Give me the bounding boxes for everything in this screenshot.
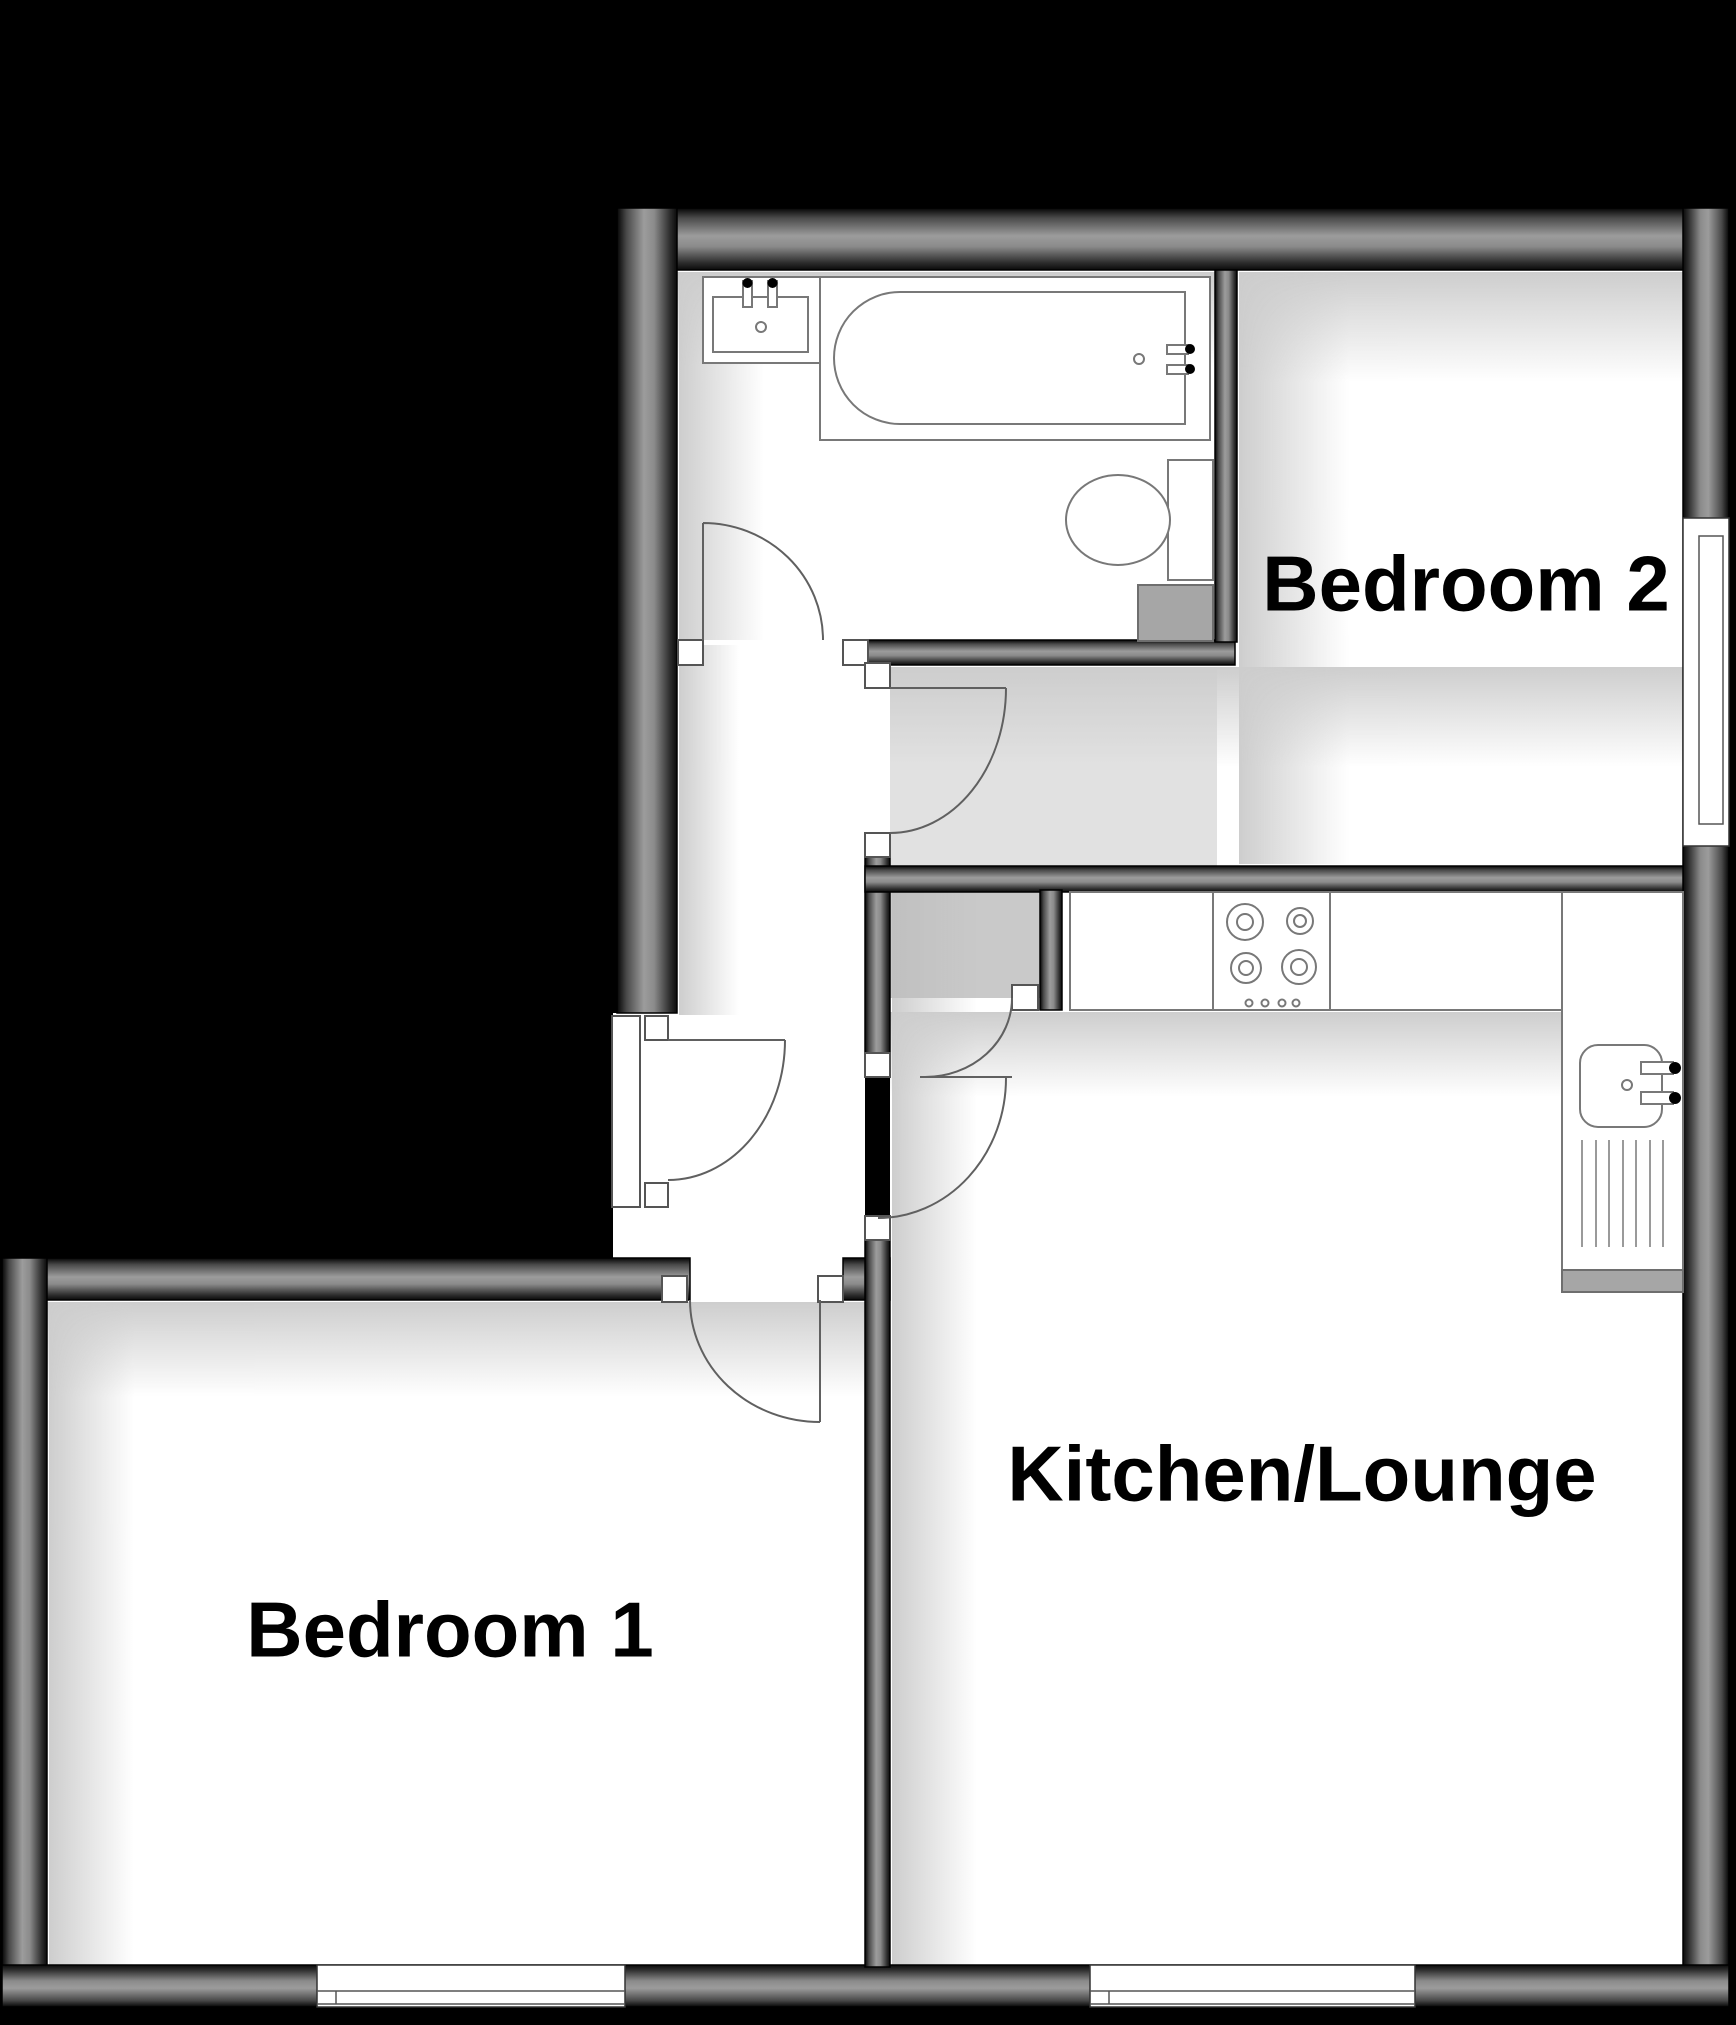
wall-exterior-east (1683, 208, 1729, 2007)
wall-cupboard-east (1040, 890, 1062, 1010)
wall-exterior-west-upper (617, 208, 677, 1013)
jamb (865, 1053, 890, 1077)
window-opening (317, 1965, 625, 2007)
basin-plughole (756, 322, 766, 332)
burner-center (1294, 915, 1306, 927)
toilet-cistern (1168, 460, 1213, 580)
hob-knob (1293, 1000, 1300, 1007)
jamb (865, 1216, 890, 1240)
shadow (890, 667, 1683, 767)
jamb (865, 663, 890, 688)
wall-bathroom-south (868, 640, 1235, 665)
hob (1213, 892, 1330, 1010)
toilet-bowl (1066, 475, 1170, 565)
wall-exterior-north (617, 208, 1730, 270)
wall-exterior-west-lower (2, 1258, 47, 2007)
sink-bowl (1580, 1045, 1662, 1127)
window-bedroom2-east (1683, 518, 1729, 846)
shadow (679, 645, 739, 1015)
window-bedroom1-south (317, 1965, 625, 2007)
sink-plughole (1622, 1080, 1632, 1090)
jamb (678, 640, 703, 665)
jamb (662, 1276, 687, 1302)
entrance-door-casing (612, 1016, 640, 1207)
jamb (865, 833, 890, 857)
hob-knob (1262, 1000, 1269, 1007)
burner-center (1291, 959, 1307, 975)
shadow (892, 890, 977, 1967)
floor-plan: Bedroom 2 Kitchen/Lounge Bedroom 1 (0, 0, 1736, 2025)
tap-dot (743, 278, 753, 288)
tap-dot (1669, 1062, 1681, 1074)
wall-bedroom2-kitchen-divider (865, 866, 1683, 892)
wall-bathroom-bedroom2-divider (1215, 270, 1237, 642)
jamb (818, 1276, 843, 1302)
floor-plan-drawing (0, 0, 1736, 2025)
jamb (1012, 985, 1038, 1010)
window-frame (1699, 536, 1723, 824)
bath-plughole (1134, 354, 1144, 364)
bathtub (820, 277, 1210, 440)
room-label-kitchen-lounge: Kitchen/Lounge (1007, 1429, 1596, 1520)
wall-bedroom1-north (2, 1258, 690, 1300)
hob-knob (1246, 1000, 1253, 1007)
burner-center (1239, 961, 1253, 975)
shadow (47, 1302, 865, 1397)
room-label-bedroom2: Bedroom 2 (1262, 539, 1669, 630)
jamb (645, 1016, 668, 1040)
room-label-bedroom1: Bedroom 1 (246, 1585, 653, 1676)
bath-tap (1167, 345, 1188, 354)
burner-center (1237, 914, 1253, 930)
shadow (49, 1302, 134, 1967)
wall-exterior-south (2, 1965, 1729, 2007)
sink-tap (1641, 1062, 1673, 1074)
tap-dot (1185, 364, 1195, 374)
jamb (843, 640, 868, 665)
window-opening (1090, 1965, 1415, 2007)
boiler-unit (1138, 585, 1213, 641)
jamb (645, 1183, 668, 1207)
wall-bedroom1-kitchen-divider (865, 1240, 890, 1967)
hob-knob (1279, 1000, 1286, 1007)
bathtub-rim (834, 292, 1185, 424)
bath-tap (1167, 365, 1188, 374)
counter-end-panel (1562, 1270, 1683, 1292)
tap-dot (1185, 344, 1195, 354)
sink-tap (1641, 1092, 1673, 1104)
tap-dot (1669, 1092, 1681, 1104)
tap-dot (768, 278, 778, 288)
bathroom-basin (703, 277, 820, 363)
window-kitchen-south (1090, 1965, 1415, 2007)
